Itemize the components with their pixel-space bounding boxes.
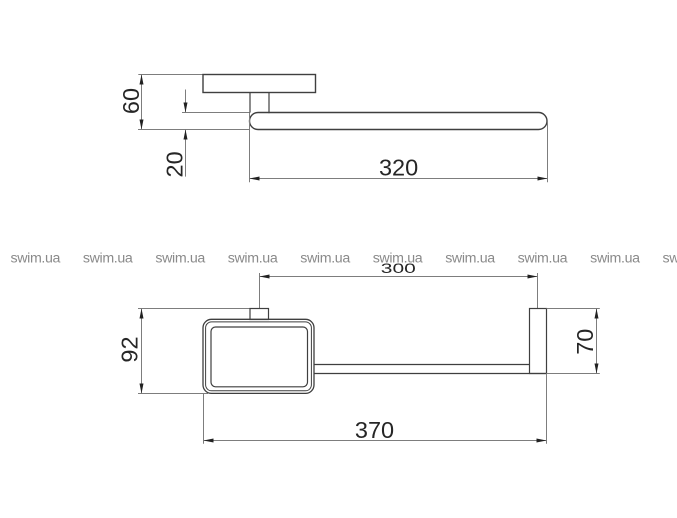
svg-text:swim.ua: swim.ua: [155, 250, 205, 266]
svg-text:swim.ua: swim.ua: [590, 250, 640, 266]
svg-text:320: 320: [379, 155, 418, 181]
svg-text:swim.ua: swim.ua: [518, 250, 568, 266]
svg-text:swim.ua: swim.ua: [445, 250, 495, 266]
svg-text:70: 70: [572, 329, 598, 355]
svg-text:swim.ua: swim.ua: [228, 250, 278, 266]
svg-text:370: 370: [355, 417, 394, 443]
svg-text:swim.ua: swim.ua: [663, 250, 677, 266]
svg-text:300: 300: [381, 260, 416, 276]
svg-text:swim.ua: swim.ua: [83, 250, 133, 266]
svg-text:20: 20: [162, 151, 188, 177]
svg-text:60: 60: [118, 88, 144, 114]
svg-text:swim.ua: swim.ua: [300, 250, 350, 266]
svg-text:swim.ua: swim.ua: [11, 250, 61, 266]
svg-text:92: 92: [117, 336, 143, 362]
